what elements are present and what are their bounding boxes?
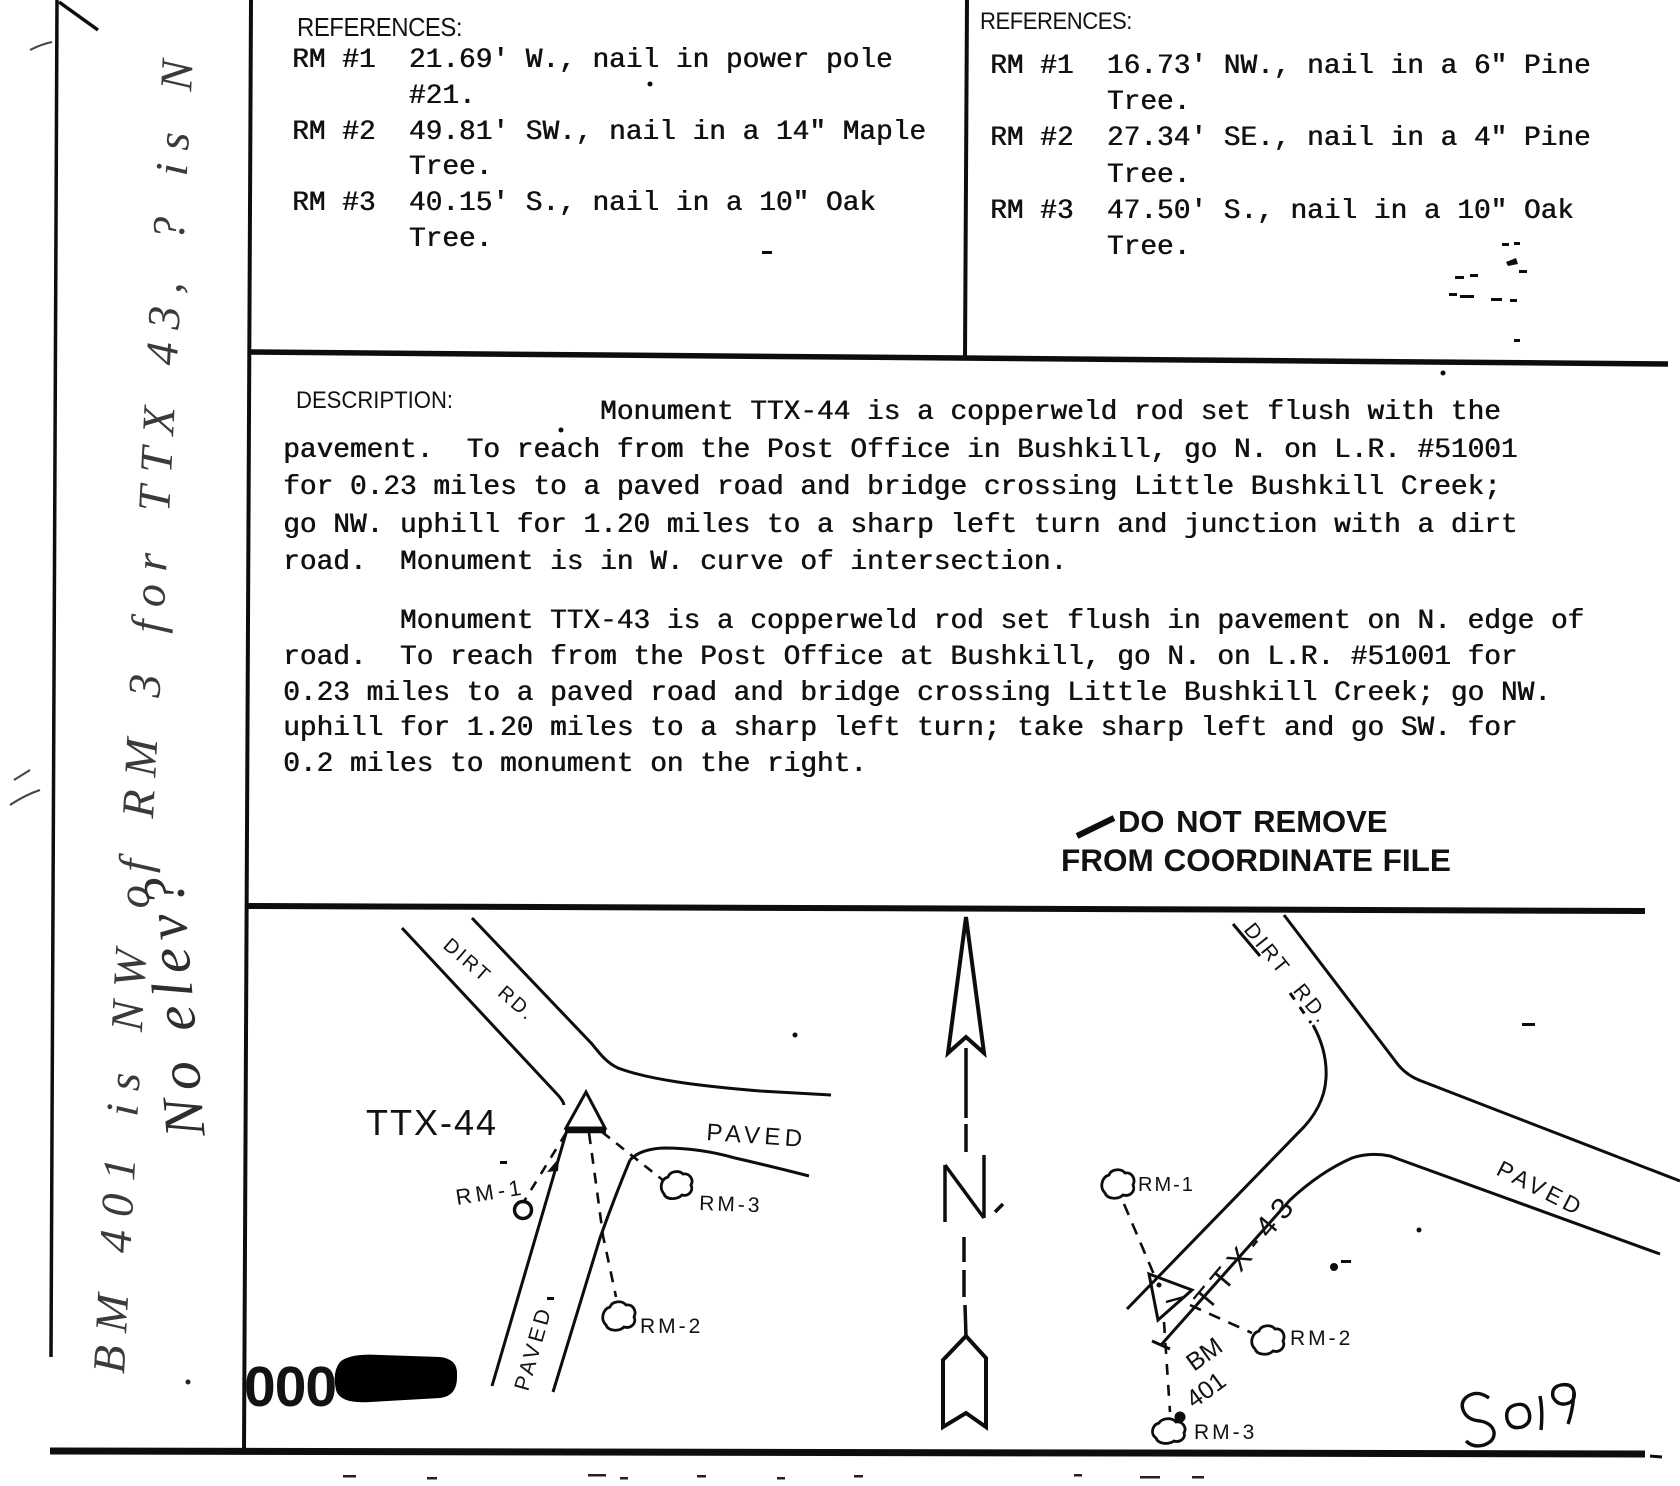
svg-text:RM-3: RM-3 bbox=[1194, 1421, 1257, 1444]
svg-text:PAVED: PAVED bbox=[706, 1119, 808, 1153]
svg-text:DIRT RD.: DIRT RD. bbox=[439, 934, 540, 1026]
svg-text:BM: BM bbox=[1181, 1332, 1228, 1377]
svg-text:RM-2: RM-2 bbox=[640, 1315, 703, 1338]
svg-text:RM-3: RM-3 bbox=[699, 1192, 763, 1217]
svg-text:RM-1: RM-1 bbox=[1138, 1174, 1195, 1196]
svg-text:401: 401 bbox=[1181, 1367, 1231, 1414]
svg-text:TTX-44: TTX-44 bbox=[366, 1102, 498, 1143]
svg-text:DIRT RD.: DIRT RD. bbox=[1239, 919, 1335, 1029]
svg-text:RM-2: RM-2 bbox=[1290, 1327, 1353, 1350]
svg-text:PAVED: PAVED bbox=[510, 1303, 557, 1393]
svg-text:TTX-43: TTX-43 bbox=[1188, 1186, 1305, 1316]
